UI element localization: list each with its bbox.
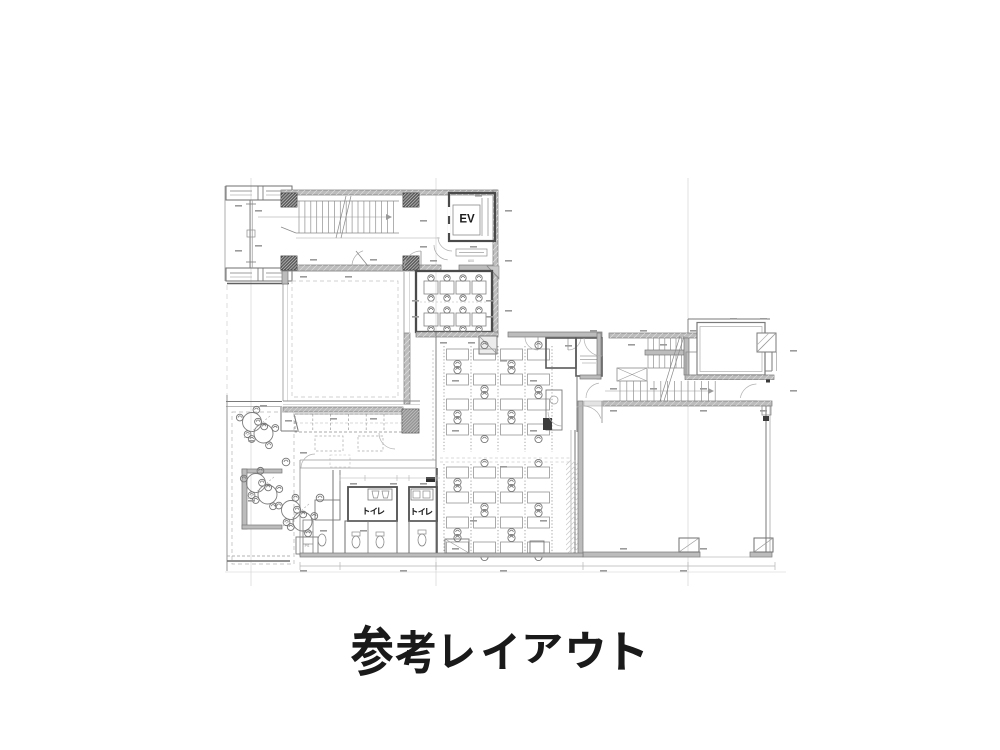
svg-text:PS: PS: [305, 544, 310, 548]
svg-text:EV: EV: [459, 214, 475, 226]
svg-text:600: 600: [468, 259, 474, 263]
